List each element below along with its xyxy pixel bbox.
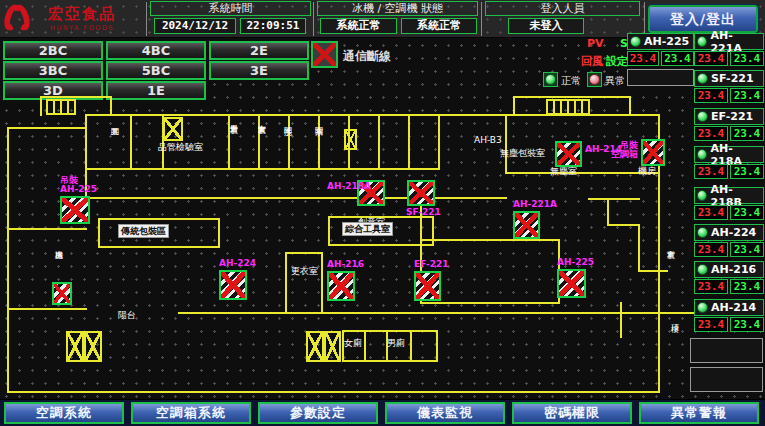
- equipment-empty-slot: [627, 69, 694, 86]
- equipment-empty-slot: [690, 367, 763, 392]
- status-lamp-icon: [630, 36, 641, 47]
- stairs-icon: [546, 99, 590, 115]
- wall-segment: [228, 116, 230, 168]
- wall-segment: [420, 239, 560, 241]
- shaft-x-icon: [163, 117, 183, 141]
- wall-segment: [588, 198, 640, 200]
- wall-segment: [98, 246, 220, 248]
- map-equipment-box[interactable]: [513, 211, 540, 239]
- map-equipment-label: AH-224: [219, 259, 256, 268]
- footer-bar: 空調系統空調箱系統參數設定儀表監視密碼權限異常警報: [0, 399, 765, 426]
- equipment-name: AH-225: [644, 35, 689, 48]
- map-room-label: AH-B3: [474, 135, 502, 145]
- footer-button-4[interactable]: 儀表監視: [385, 402, 505, 424]
- sv-value: 23.4: [730, 317, 764, 332]
- equipment-name: AH-214: [711, 301, 756, 314]
- elevator-x-icon: [84, 331, 102, 362]
- equipment-name: AH-216: [711, 263, 756, 276]
- map-equipment-box[interactable]: [219, 270, 247, 300]
- wall-segment: [40, 96, 42, 116]
- equipment-list-item-ah-225[interactable]: AH-225: [627, 33, 694, 50]
- map-equipment-label: AH-218A: [327, 182, 371, 191]
- wall-segment: [432, 216, 434, 246]
- wall-segment: [328, 244, 434, 246]
- map-equipment-label: 吊裝空調箱: [611, 141, 638, 159]
- wall-segment: [258, 116, 260, 168]
- wall-segment: [110, 96, 112, 116]
- equipment-list-item-ah-218a[interactable]: AH-218A: [694, 146, 764, 163]
- wall-segment: [218, 218, 220, 248]
- footer-button-3[interactable]: 參數設定: [258, 402, 378, 424]
- wall-segment: [321, 252, 323, 312]
- map-room-label: 女廁: [344, 338, 362, 348]
- wall-segment: [328, 216, 330, 246]
- wall-segment: [130, 116, 132, 168]
- map-equipment-label: AH-221A: [513, 200, 557, 209]
- map-equipment-box[interactable]: [557, 269, 586, 298]
- map-room-label: 機房: [638, 166, 656, 176]
- wall-segment: [7, 308, 87, 310]
- map-room-label: 陽台: [118, 310, 136, 320]
- elevator-x-icon: [324, 331, 342, 362]
- pv-value: 23.4: [694, 279, 728, 294]
- map-equipment-box[interactable]: [641, 139, 665, 166]
- wall-segment: [285, 252, 287, 312]
- status-lamp-icon: [697, 227, 708, 238]
- sv-value: 23.4: [730, 279, 764, 294]
- pv-value: 23.4: [694, 51, 728, 66]
- wall-segment: [285, 252, 323, 254]
- map-room-label: 品管檢驗室: [158, 142, 203, 152]
- wall-segment: [408, 116, 410, 168]
- sv-value: 23.4: [730, 126, 764, 141]
- wall-segment: [178, 312, 695, 314]
- footer-button-1[interactable]: 空調系統: [4, 402, 124, 424]
- footer-button-6[interactable]: 異常警報: [639, 402, 759, 424]
- pv-value: 23.4: [694, 126, 728, 141]
- map-room-label: 更衣室: [291, 266, 318, 276]
- equipment-name: AH-224: [711, 226, 756, 239]
- equipment-empty-slot: [690, 338, 763, 363]
- equipment-list-item-ah-224[interactable]: AH-224: [694, 224, 764, 241]
- wall-segment: [638, 270, 668, 272]
- wall-segment: [7, 127, 87, 129]
- wall-segment: [629, 96, 631, 116]
- equipment-list-item-sf-221[interactable]: SF-221: [694, 70, 764, 87]
- wall-segment: [607, 224, 640, 226]
- map-room-label: 男廁: [387, 338, 405, 348]
- wall-segment: [607, 200, 609, 226]
- elevator-x-icon: [306, 331, 324, 362]
- wall-segment: [342, 360, 438, 362]
- equipment-list-item-ah-221a[interactable]: AH-221A: [694, 33, 764, 50]
- map-equipment-box[interactable]: [407, 180, 435, 206]
- equipment-list-item-ah-218b[interactable]: AH-218B: [694, 187, 764, 204]
- map-equipment-label: EF-221: [414, 260, 449, 269]
- equipment-list-item-ah-214[interactable]: AH-214: [694, 299, 764, 316]
- status-lamp-icon: [697, 111, 708, 122]
- equipment-list-item-ah-216[interactable]: AH-216: [694, 261, 764, 278]
- map-area-label: 傳統包裝區: [118, 224, 169, 238]
- map-equipment-box[interactable]: [414, 271, 441, 301]
- map-room-label: 無塵室: [550, 166, 577, 176]
- wall-segment: [364, 330, 366, 362]
- pv-value: 23.4: [694, 88, 728, 103]
- pv-value: 23.4: [627, 51, 659, 66]
- shaft-x-icon: [344, 129, 357, 150]
- wall-segment: [85, 197, 507, 199]
- pv-value: 23.4: [694, 242, 728, 257]
- wall-segment: [98, 218, 100, 248]
- wall-segment: [638, 226, 640, 272]
- map-equipment-label: 吊裝AH-225: [60, 176, 97, 194]
- map-equipment-label: SF-221: [406, 208, 441, 217]
- wall-segment: [98, 218, 220, 220]
- hmi-screen: 宏亞食品 HUNYA FOODS 系統時間 2024/12/12 22:09:5…: [0, 0, 765, 426]
- status-lamp-icon: [697, 36, 707, 47]
- stairs-icon: [46, 99, 76, 115]
- map-equipment-box[interactable]: [60, 196, 90, 224]
- map-equipment-label: AH-216: [327, 260, 364, 269]
- map-equipment-box[interactable]: [555, 141, 582, 167]
- map-equipment-box[interactable]: [52, 282, 72, 305]
- equipment-name: EF-221: [711, 110, 753, 123]
- sv-value: 23.4: [730, 88, 764, 103]
- footer-button-5[interactable]: 密碼權限: [512, 402, 632, 424]
- wall-segment: [513, 96, 515, 116]
- wall-segment: [378, 116, 380, 168]
- sv-value: 23.4: [730, 242, 764, 257]
- wall-segment: [7, 127, 9, 393]
- status-lamp-icon: [697, 190, 707, 201]
- pv-value: 23.4: [694, 164, 728, 179]
- map-area-label: 綜合工具室: [342, 222, 393, 236]
- pv-value: 23.4: [694, 205, 728, 220]
- elevator-x-icon: [66, 331, 84, 362]
- wall-segment: [342, 330, 438, 332]
- map-equipment-label: AH-225: [557, 258, 594, 267]
- wall-segment: [513, 96, 631, 98]
- sv-value: 23.4: [730, 205, 764, 220]
- wall-segment: [7, 228, 87, 230]
- wall-segment: [620, 302, 622, 338]
- wall-segment: [505, 172, 660, 174]
- map-room-label: 無塵包裝室: [500, 148, 545, 158]
- wall-segment: [85, 168, 440, 170]
- wall-segment: [436, 330, 438, 362]
- status-lamp-icon: [697, 302, 708, 313]
- wall-segment: [7, 391, 660, 393]
- sv-value: 23.4: [730, 51, 764, 66]
- pv-value: 23.4: [694, 317, 728, 332]
- wall-segment: [438, 116, 440, 168]
- equipment-name: SF-221: [711, 72, 754, 85]
- status-lamp-icon: [697, 264, 708, 275]
- sv-value: 23.4: [661, 51, 694, 66]
- equipment-list-item-ef-221[interactable]: EF-221: [694, 108, 764, 125]
- map-equipment-box[interactable]: [327, 271, 355, 301]
- status-lamp-icon: [697, 149, 707, 160]
- wall-segment: [420, 302, 560, 304]
- wall-segment: [318, 116, 320, 168]
- footer-button-2[interactable]: 空調箱系統: [131, 402, 251, 424]
- wall-segment: [410, 330, 412, 362]
- status-lamp-icon: [697, 73, 708, 84]
- wall-segment: [288, 116, 290, 168]
- sv-value: 23.4: [730, 164, 764, 179]
- wall-segment: [505, 114, 507, 174]
- wall-segment: [40, 96, 112, 98]
